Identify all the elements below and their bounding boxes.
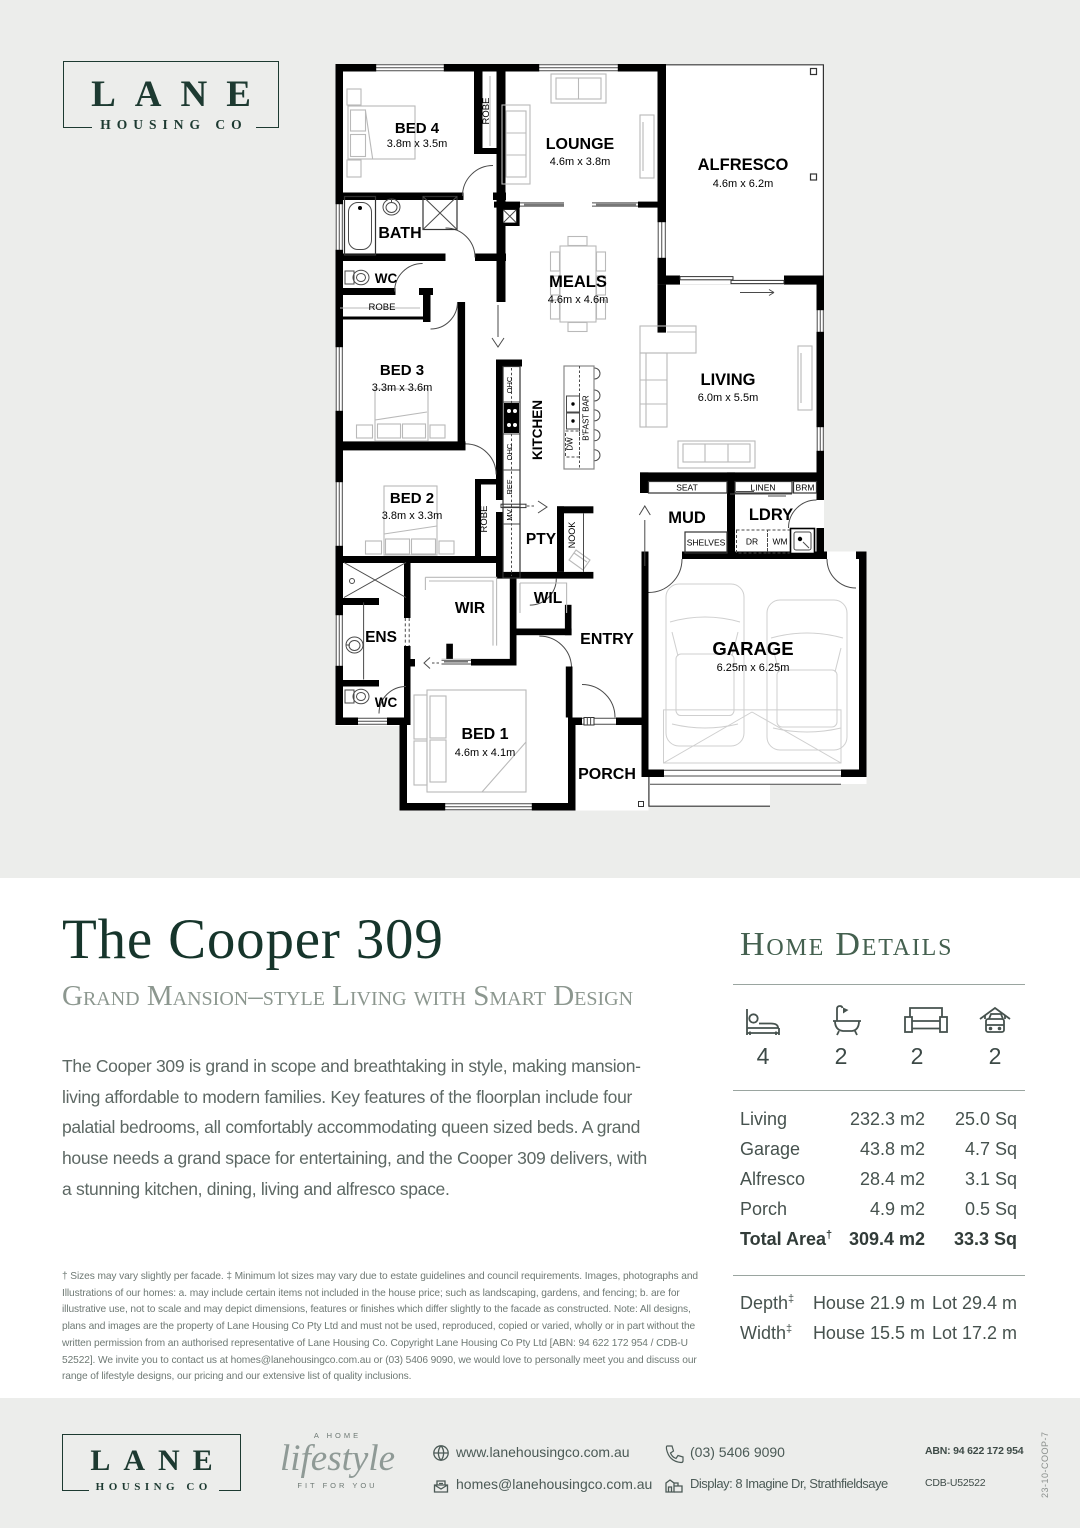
- svg-text:WIR: WIR: [455, 600, 485, 617]
- svg-text:DR: DR: [746, 537, 758, 547]
- svg-text:WIL: WIL: [534, 590, 562, 607]
- svg-text:DW: DW: [566, 437, 575, 451]
- svg-text:4.6m x 4.6m: 4.6m x 4.6m: [548, 294, 609, 306]
- svg-text:SHELVES: SHELVES: [687, 538, 726, 548]
- svg-text:LIVING: LIVING: [700, 371, 755, 389]
- svg-text:LDRY: LDRY: [749, 506, 793, 524]
- svg-text:6.0m x 5.5m: 6.0m x 5.5m: [698, 392, 759, 404]
- svg-text:KITCHEN: KITCHEN: [530, 400, 545, 460]
- svg-text:3.8m x 3.5m: 3.8m x 3.5m: [387, 138, 448, 150]
- svg-text:4.6m x 6.2m: 4.6m x 6.2m: [713, 178, 774, 190]
- svg-text:REF: REF: [505, 479, 514, 494]
- svg-text:4.6m x 4.1m: 4.6m x 4.1m: [455, 747, 516, 759]
- svg-text:OHC: OHC: [505, 376, 514, 393]
- svg-text:BRM: BRM: [796, 483, 815, 493]
- svg-text:3.3m x 3.6m: 3.3m x 3.6m: [372, 382, 433, 394]
- svg-text:SEAT: SEAT: [676, 483, 698, 493]
- svg-text:WM: WM: [772, 537, 787, 547]
- svg-text:BATH: BATH: [378, 225, 421, 242]
- svg-text:OHC: OHC: [505, 443, 514, 460]
- svg-text:BED 2: BED 2: [390, 490, 434, 507]
- svg-text:ALFRESCO: ALFRESCO: [698, 156, 789, 174]
- svg-text:3.8m x 3.3m: 3.8m x 3.3m: [382, 510, 443, 522]
- svg-text:ENS: ENS: [365, 629, 397, 646]
- svg-text:WC: WC: [375, 695, 398, 710]
- svg-text:BED 1: BED 1: [461, 726, 508, 743]
- svg-text:MUD: MUD: [668, 509, 706, 527]
- svg-text:BED 3: BED 3: [380, 362, 424, 379]
- svg-text:WC: WC: [375, 271, 398, 286]
- svg-text:PORCH: PORCH: [578, 766, 636, 783]
- svg-text:ENTRY: ENTRY: [580, 631, 634, 648]
- svg-text:NOOK: NOOK: [567, 522, 577, 549]
- svg-text:BED 4: BED 4: [395, 120, 440, 137]
- svg-text:6.25m x 6.25m: 6.25m x 6.25m: [717, 662, 790, 674]
- svg-text:ROBE: ROBE: [481, 98, 492, 125]
- svg-text:PTY: PTY: [526, 531, 557, 548]
- svg-text:MV: MV: [505, 509, 514, 520]
- svg-text:GARAGE: GARAGE: [712, 638, 793, 659]
- svg-text:4.6m x 3.8m: 4.6m x 3.8m: [550, 156, 611, 168]
- svg-text:ROBE: ROBE: [369, 302, 396, 313]
- svg-text:MEALS: MEALS: [549, 273, 607, 291]
- svg-text:LINEN: LINEN: [750, 483, 775, 493]
- svg-text:B'FAST BAR: B'FAST BAR: [582, 395, 591, 441]
- svg-text:ROBE: ROBE: [479, 506, 490, 533]
- svg-text:LOUNGE: LOUNGE: [546, 136, 615, 153]
